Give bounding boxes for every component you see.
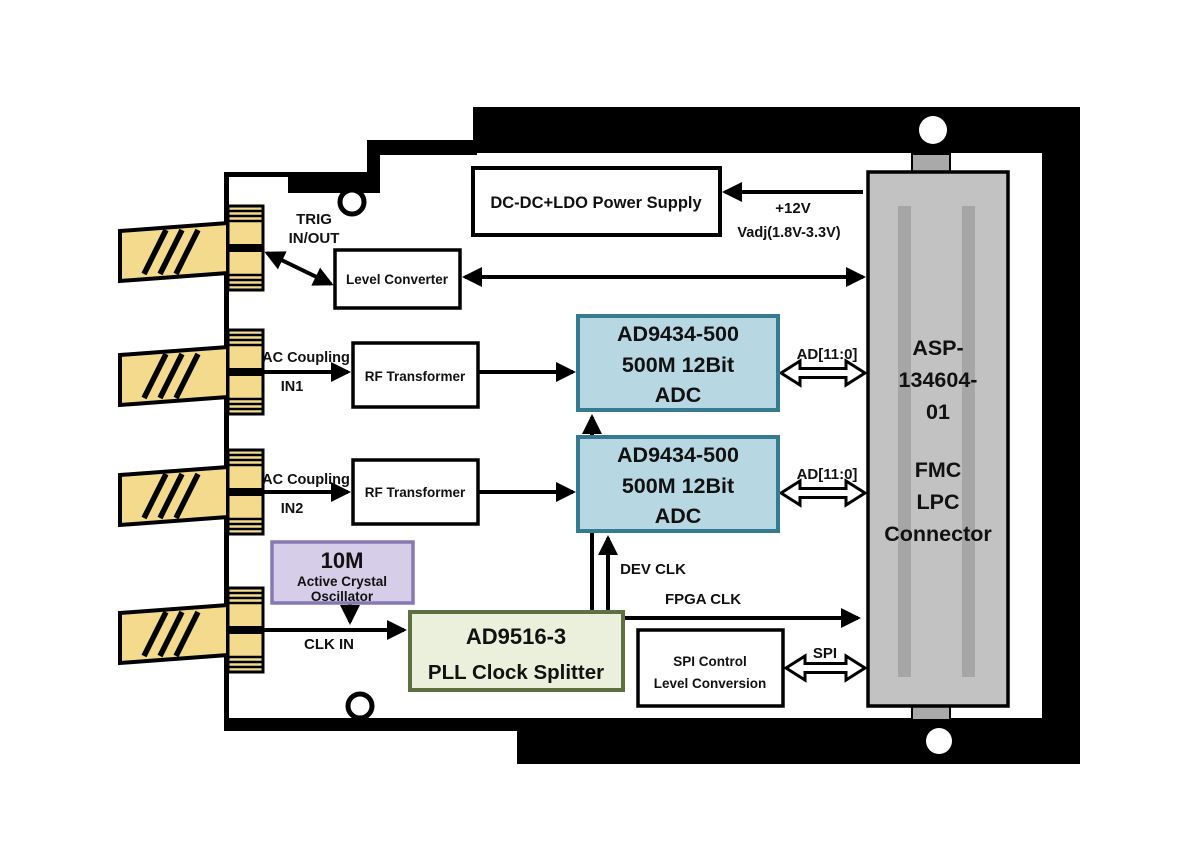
outline-top-thin-edge	[224, 172, 292, 177]
adc-2-line2: 500M 12Bit	[622, 474, 734, 498]
in1-ac-coupling-label: AC Coupling	[262, 350, 350, 366]
outline-top-bar	[473, 107, 1080, 153]
in1-label: IN1	[281, 379, 304, 395]
level-converter-label: Level Converter	[346, 272, 449, 287]
spi-control-line1: SPI Control	[673, 654, 747, 669]
power-vadj-label: Vadj(1.8V-3.3V)	[737, 225, 840, 241]
fmc-connector-body	[868, 172, 1008, 706]
adc-2-line3: ADC	[655, 504, 702, 528]
oscillator-line1: 10M	[321, 548, 364, 573]
spi-control-line2: Level Conversion	[654, 676, 767, 691]
block-level-converter: Level Converter	[335, 250, 460, 308]
adc-1-line3: ADC	[655, 383, 702, 407]
outline-bottom-thin-bar	[224, 718, 520, 731]
block-spi-control: SPI Control Level Conversion	[638, 630, 783, 706]
block-pll: AD9516-3 PLL Clock Splitter	[410, 612, 623, 690]
adc-1-line2: 500M 12Bit	[622, 353, 734, 377]
mounting-hole-top-left	[340, 190, 364, 214]
fmc-slot-stripe-right	[962, 206, 975, 677]
block-rf-transformer-2: RF Transformer	[353, 460, 478, 524]
pll-line1: AD9516-3	[466, 624, 566, 649]
fpga-clk-label: FPGA CLK	[665, 591, 741, 608]
mounting-hole-top-right	[919, 116, 947, 144]
block-adc-2: AD9434-500 500M 12Bit ADC	[578, 437, 778, 531]
spi-label: SPI	[813, 645, 837, 662]
diagram-canvas: ASP- 134604- 01 FMC LPC Connector DC-DC+…	[0, 0, 1200, 858]
rf-transformer-1-label: RF Transformer	[365, 369, 466, 384]
oscillator-line2: Active Crystal	[297, 574, 387, 589]
fmc-label-line5: LPC	[917, 490, 960, 514]
oscillator-line3: Oscillator	[311, 589, 374, 604]
fmc-connector: ASP- 134604- 01 FMC LPC Connector	[868, 154, 1008, 720]
ad-bus-1-label: AD[11:0]	[797, 346, 858, 363]
sma-connector-clk	[120, 588, 263, 672]
outline-top-left-block	[288, 172, 380, 193]
in2-ac-coupling-label: AC Coupling	[262, 472, 350, 488]
fmc-label-line4: FMC	[915, 458, 962, 482]
outline-right-bar	[1042, 107, 1080, 764]
fmc-adc-board-block-diagram: ASP- 134604- 01 FMC LPC Connector DC-DC+…	[0, 0, 1200, 858]
sma-connector-trig	[120, 206, 263, 290]
block-rf-transformer-1: RF Transformer	[353, 343, 478, 407]
fmc-label-line2: 134604-	[899, 368, 978, 392]
fmc-tab-top	[912, 154, 950, 172]
adc-1-line1: AD9434-500	[617, 322, 739, 346]
sma-connector-in1	[120, 330, 263, 414]
rf-transformer-2-label: RF Transformer	[365, 485, 466, 500]
power-12v-label: +12V	[775, 200, 810, 217]
arrow-trig-bidirectional	[267, 253, 331, 284]
clk-in-label: CLK IN	[304, 636, 354, 653]
outline-bottom-thick-bar	[517, 718, 1080, 764]
outline-top-step	[367, 140, 477, 155]
block-oscillator: 10M Active Crystal Oscillator	[272, 542, 413, 604]
dev-clk-label: DEV CLK	[620, 561, 686, 578]
sma-connector-in2	[120, 450, 263, 534]
fmc-label-line6: Connector	[884, 522, 992, 546]
fmc-label-line1: ASP-	[912, 336, 963, 360]
mounting-hole-bottom-right	[926, 728, 952, 754]
ad-bus-2-label: AD[11:0]	[797, 466, 858, 483]
pll-line2: PLL Clock Splitter	[428, 661, 604, 684]
adc-2-line1: AD9434-500	[617, 443, 739, 467]
mounting-hole-bottom-left	[348, 694, 372, 718]
trig-label-line2: IN/OUT	[289, 230, 340, 247]
block-adc-1: AD9434-500 500M 12Bit ADC	[578, 316, 778, 410]
bus-arrows	[781, 361, 865, 680]
fmc-slot-stripe-left	[898, 206, 911, 677]
trig-label-line1: TRIG	[296, 211, 332, 228]
power-supply-label: DC-DC+LDO Power Supply	[490, 194, 702, 212]
in2-label: IN2	[281, 501, 304, 517]
bus-arrow-ad11-0-adc2	[781, 481, 865, 505]
fmc-label-line3: 01	[926, 400, 950, 424]
bus-arrow-ad11-0-adc1	[781, 361, 865, 385]
block-power-supply: DC-DC+LDO Power Supply	[473, 168, 720, 235]
